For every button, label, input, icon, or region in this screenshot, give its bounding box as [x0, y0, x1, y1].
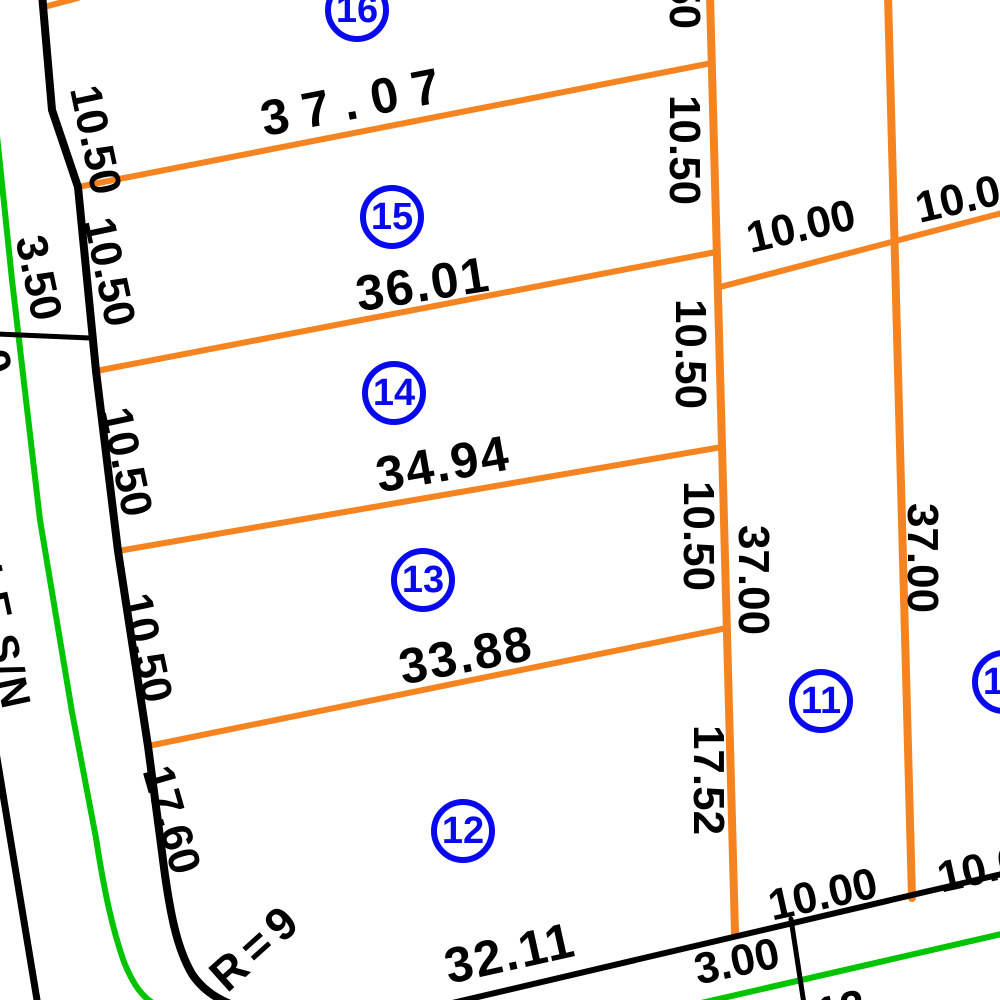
dimension-depth-lot11: 37.00 — [731, 525, 775, 635]
lot-badge-14: 14 — [362, 361, 426, 425]
dimension-depth-lot10: 37.00 — [900, 503, 944, 613]
dimension-side-depth-lot12: 17.52 — [686, 725, 730, 835]
plat-map: 37.07 36.01 34.94 33.88 32.11 10.50 10.5… — [0, 0, 1000, 1000]
west-parcel-line — [0, 334, 90, 338]
lot-badge-15: 15 — [360, 185, 424, 249]
dimension-side-depth-lot15: 10.50 — [662, 95, 706, 205]
road-edge-west — [0, 752, 38, 1000]
block-line-rear-east — [888, 0, 912, 898]
dimension-side-depth-lot13: 10.50 — [676, 481, 720, 591]
lot-badge-11: 11 — [789, 669, 853, 733]
lot-line-top-partial — [44, 0, 78, 7]
dimension-side-depth-partial-top: 10.50 — [662, 0, 706, 29]
south-lot-tick — [791, 919, 804, 1000]
dimension-side-depth-lot14: 10.50 — [668, 299, 712, 409]
lot-badge-13: 13 — [391, 548, 455, 612]
lot-badge-12: 12 — [431, 799, 495, 863]
